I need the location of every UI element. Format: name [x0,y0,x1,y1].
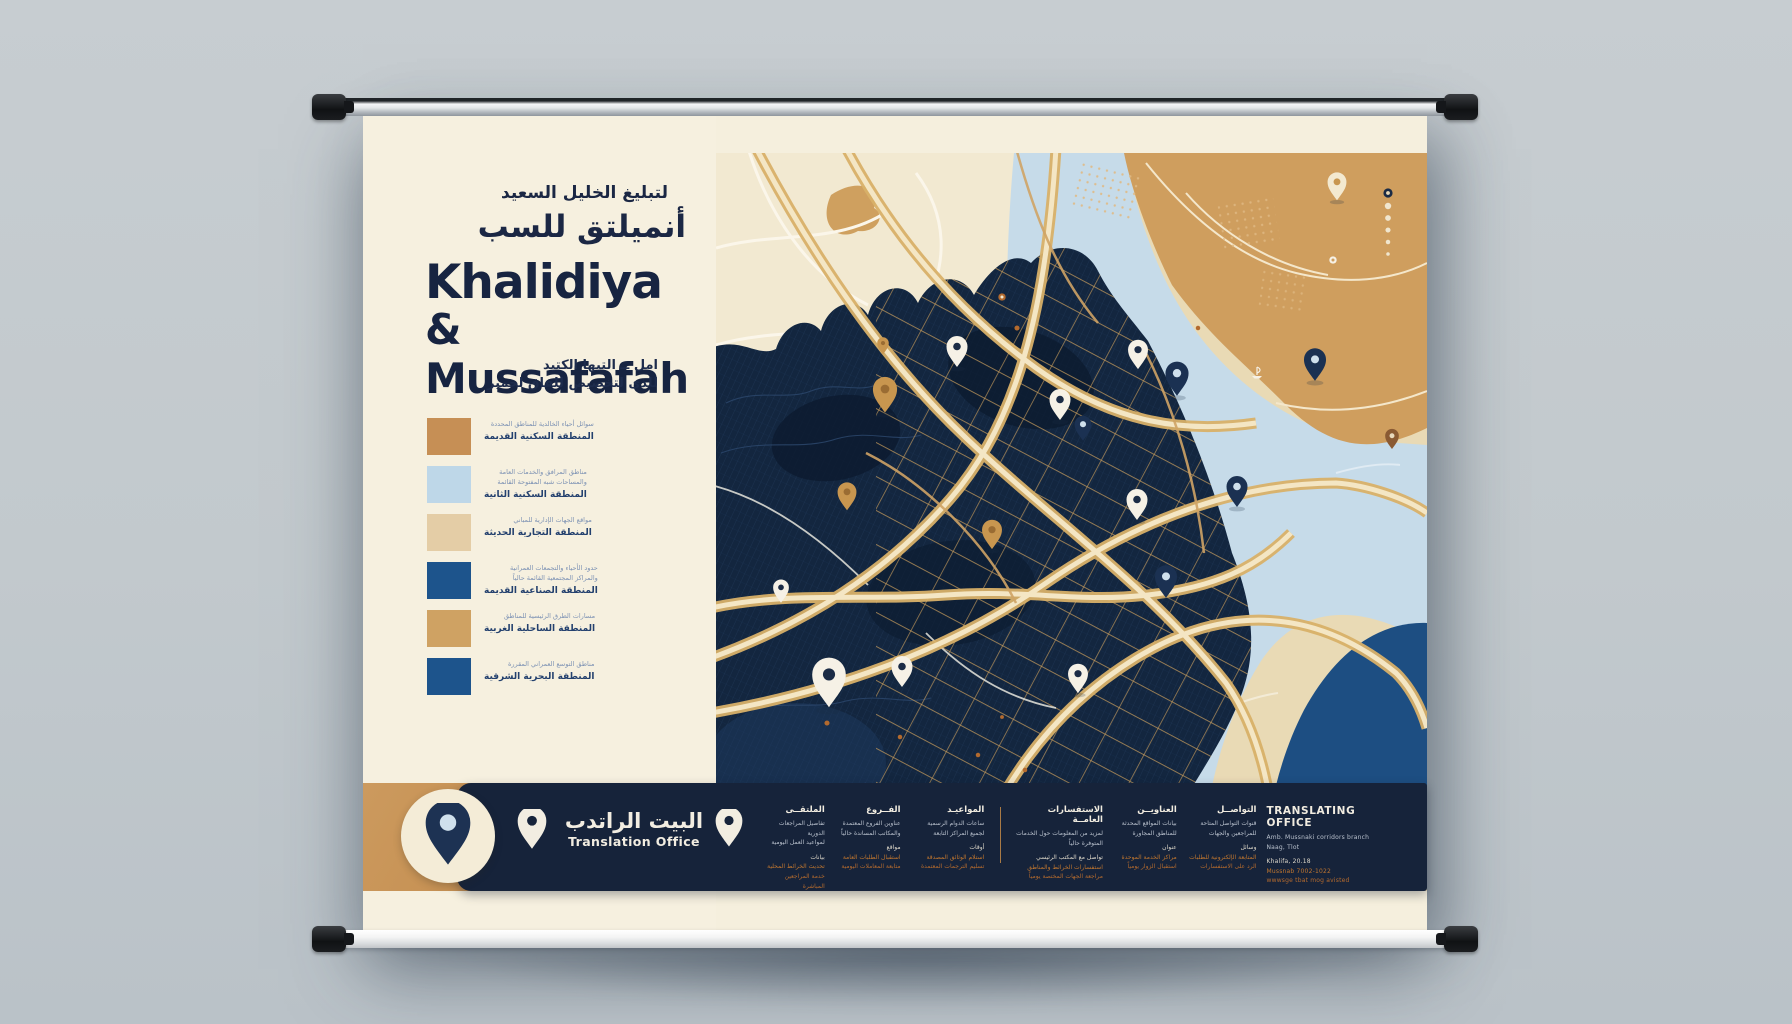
subtitle-arabic-line2: للذى لتخصيص للفاق لحمير [428,376,658,391]
poster-shadow [430,948,1410,1008]
legend-swatch [427,562,471,599]
map-dot [1000,715,1004,719]
map-dot [1385,203,1391,209]
city-map [716,153,1427,891]
legend-label: مواقع الجهات الإدارية للمبانيالمنطقة الت… [484,514,592,540]
footer-column: المواعيـدساعات الدوام الرسميةلجميع المرا… [911,805,985,872]
legend-swatch [427,418,471,455]
map-dot [998,293,1005,300]
pin-icon [517,809,547,853]
map-dot [1329,256,1336,263]
title-arabic-line1: لتبليغ الخليل السعيد [428,183,668,203]
map-dot [1383,188,1392,197]
legend-label: مسارات الطرق الرئيسية للمناطقالمنطقة الس… [484,610,595,636]
map-dot [898,735,902,739]
footer-column-header: الملتقــى [763,805,825,815]
legend-label: مناطق المرافق والخدمات العامةوالمساحات ش… [484,466,587,502]
map-dot [824,720,829,725]
map-dot [1196,326,1200,330]
map-dot [1023,768,1027,772]
map-dot [1386,240,1390,244]
brand-name-english: Translation Office [559,834,709,849]
footer-column: الفــروععناوين الفروع المعتمدةوالمكاتب ا… [835,805,901,872]
footer-column: الاستفسارات العامــةلمزيد من المعلومات ح… [1015,805,1103,882]
map-dot [1386,252,1390,256]
subtitle-arabic-line1: امل ــ التيها الكتيد [428,358,658,373]
logo-circle [401,789,495,883]
bottom-rod-bar [330,930,1460,948]
legend-item: حدود الأحياء والتجمعات العمرانيةوالمراكز… [427,562,692,599]
map-dot [1385,227,1390,232]
footer-column: العناويــنبيانات المواقع المحدثةللمناطق … [1113,805,1177,872]
legend-swatch [427,610,471,647]
legend-swatch [427,658,471,695]
pin-icon [715,809,743,851]
bottom-rod-right-cap [1444,926,1478,952]
legend-label: حدود الأحياء والتجمعات العمرانيةوالمراكز… [484,562,598,598]
footer-column-header: العناويــن [1113,805,1177,815]
map-poster: لتبليغ الخليل السعيد أنميلتق للسب Khalid… [363,115,1427,935]
footer-column-header: الاستفسارات العامــة [1015,805,1103,825]
legend-item: مناطق التوسع العمراني المقررةالمنطقة الب… [427,658,692,695]
legend-item: مسارات الطرق الرئيسية للمناطقالمنطقة الس… [427,610,692,647]
brand-name-arabic: البيت الراتدب [559,809,709,834]
bottom-rod-left-cap [312,926,346,952]
page-title: Khalidiya [425,255,662,310]
bottom-hanging-rod [312,926,1478,952]
footer-columns: الملتقــىتفاصيل المراجعات الدوريةلمواعيد… [763,805,1411,891]
footer-column-header: TRANSLATING OFFICE [1266,805,1401,829]
footer-column: الملتقــىتفاصيل المراجعات الدوريةلمواعيد… [763,805,825,891]
footer-divider [1000,807,1001,863]
map-dot [1014,325,1019,330]
top-hanging-rod [312,94,1478,120]
legend-label: سوائل أحياء الخالدية للمناطق المحددةالمن… [484,418,594,444]
title-arabic-line2: أنميلتق للسب [426,209,686,245]
footer-column-header: المواعيـد [911,805,985,815]
footer-band: البيت الراتدب Translation Office الملتقـ… [363,783,1427,891]
footer-column-header: التواصــل [1187,805,1257,815]
top-rod-right-cap [1444,94,1478,120]
footer-column-header: الفــروع [835,805,901,815]
legend-swatch [427,466,471,503]
top-rod-bar [330,98,1460,116]
legend-item: مواقع الجهات الإدارية للمبانيالمنطقة الت… [427,514,692,551]
footer-column: TRANSLATING OFFICEAmb. Mussnaki corridor… [1266,805,1401,886]
legend-swatch [427,514,471,551]
footer-column: التواصــلقنوات التواصل المتاحةللمراجعين … [1187,805,1257,872]
legend-item: سوائل أحياء الخالدية للمناطق المحددةالمن… [427,418,692,455]
top-rod-left-cap [312,94,346,120]
legend-item: مناطق المرافق والخدمات العامةوالمساحات ش… [427,466,692,503]
legend-label: مناطق التوسع العمراني المقررةالمنطقة الب… [484,658,594,684]
logo-pin-icon [423,803,473,869]
map-legend: سوائل أحياء الخالدية للمناطق المحددةالمن… [427,418,692,706]
map-dot [976,753,980,757]
map-dot [1385,215,1391,221]
